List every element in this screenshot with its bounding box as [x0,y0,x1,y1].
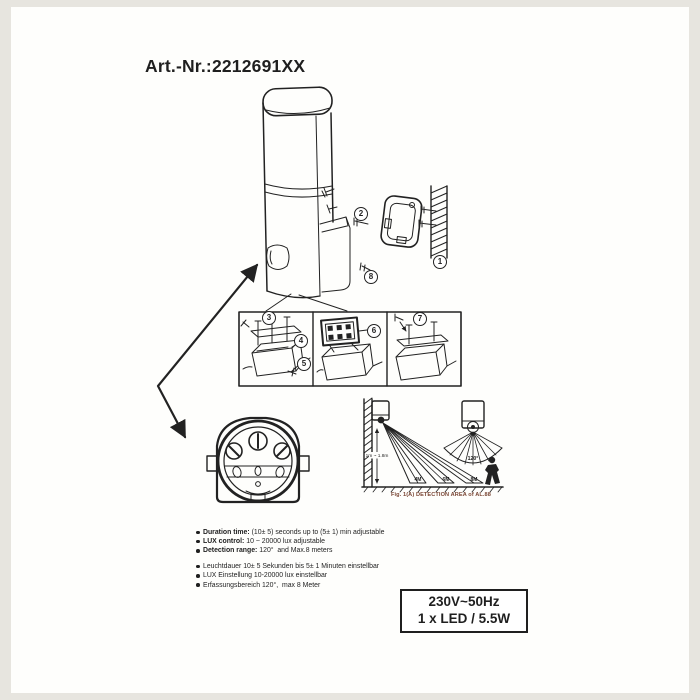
bullet-icon [196,531,200,535]
callout-4: 4 [294,334,308,348]
led-line: 1 x LED / 5.5W [402,611,526,628]
bullet-range-en: Detection range: 120° and Max.8 meters [196,546,436,555]
height-label: 1m ~ 1.8m [366,453,389,459]
callout-1: 1 [433,255,447,269]
bullet-text: (10± 5) seconds up to (5± 1) min adjusta… [250,529,385,536]
bullet-label: LUX control: [203,538,244,545]
angle-label: 120° [468,456,479,462]
bullet-duration-en: Duration time: (10± 5) seconds up to (5±… [196,528,436,537]
bullet-icon [196,549,200,553]
detail-pointer-arrow [158,265,257,437]
bullet-duration-de: Leuchtdauer 10± 5 Sekunden bis 5± 1 Minu… [196,562,436,571]
bullet-label: Duration time: [203,529,250,536]
distance-label-8m: 8M [471,477,478,483]
callout-8: 8 [364,270,378,284]
callout-7: 7 [413,312,427,326]
callout-6: 6 [367,324,381,338]
lamp-drawing [263,87,350,298]
person-icon [485,457,500,485]
bullet-icon [196,574,200,578]
callout-2: 2 [354,207,368,221]
distance-label-6m: 6M [443,477,450,483]
panel-leader-lines [266,294,347,311]
callout-5: 5 [297,357,311,371]
bullet-icon [196,540,200,544]
voltage-line: 230V~50Hz [402,594,526,611]
distance-label-4m: 4M [415,477,422,483]
bullet-icon [196,583,200,587]
bullet-label: Detection range: [203,547,257,554]
bullet-text: Erfassungsbereich 120°, max 8 Meter [203,581,320,590]
instruction-line-art: 1m ~ 1.8m 4M 6M 8M 120° [0,0,700,700]
bullet-lux-en: LUX control: 10 ~ 20000 lux adjustable [196,537,436,546]
bullet-text: 120° and Max.8 meters [257,547,332,554]
callout-3: 3 [262,311,276,325]
bullet-text: 10 ~ 20000 lux adjustable [244,538,325,545]
bullet-text: Leuchtdauer 10± 5 Sekunden bis 5± 1 Minu… [203,562,379,571]
bullet-text: LUX Einstellung 10-20000 lux einstellbar [203,571,327,580]
bullet-lux-de: LUX Einstellung 10-20000 lux einstellbar [196,571,436,580]
sensor-face-drawing [207,418,309,502]
detection-diagram: 1m ~ 1.8m 4M 6M 8M 120° [362,398,503,492]
spec-bullets: Duration time: (10± 5) seconds up to (5±… [196,528,436,590]
power-spec-box: 230V~50Hz 1 x LED / 5.5W [400,589,528,633]
bullet-icon [196,565,200,569]
detection-caption: Fig. 1(A) DETECTION AREA of AL.88 [372,492,510,498]
